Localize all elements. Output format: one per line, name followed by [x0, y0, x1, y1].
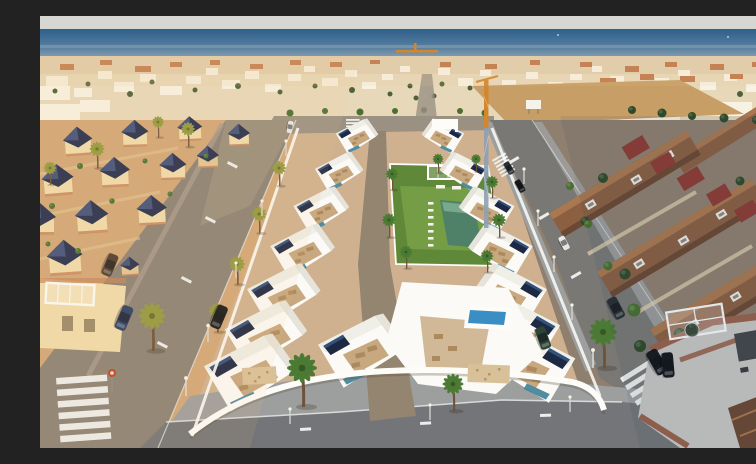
aerial-photo: Aerial drone photograph of a coastal tow…	[40, 16, 756, 448]
distant-boat	[557, 34, 559, 36]
distant-boat	[727, 36, 729, 38]
private-pool	[468, 310, 506, 325]
stone-wall-panel	[467, 364, 510, 383]
horizon-haze	[40, 56, 756, 86]
